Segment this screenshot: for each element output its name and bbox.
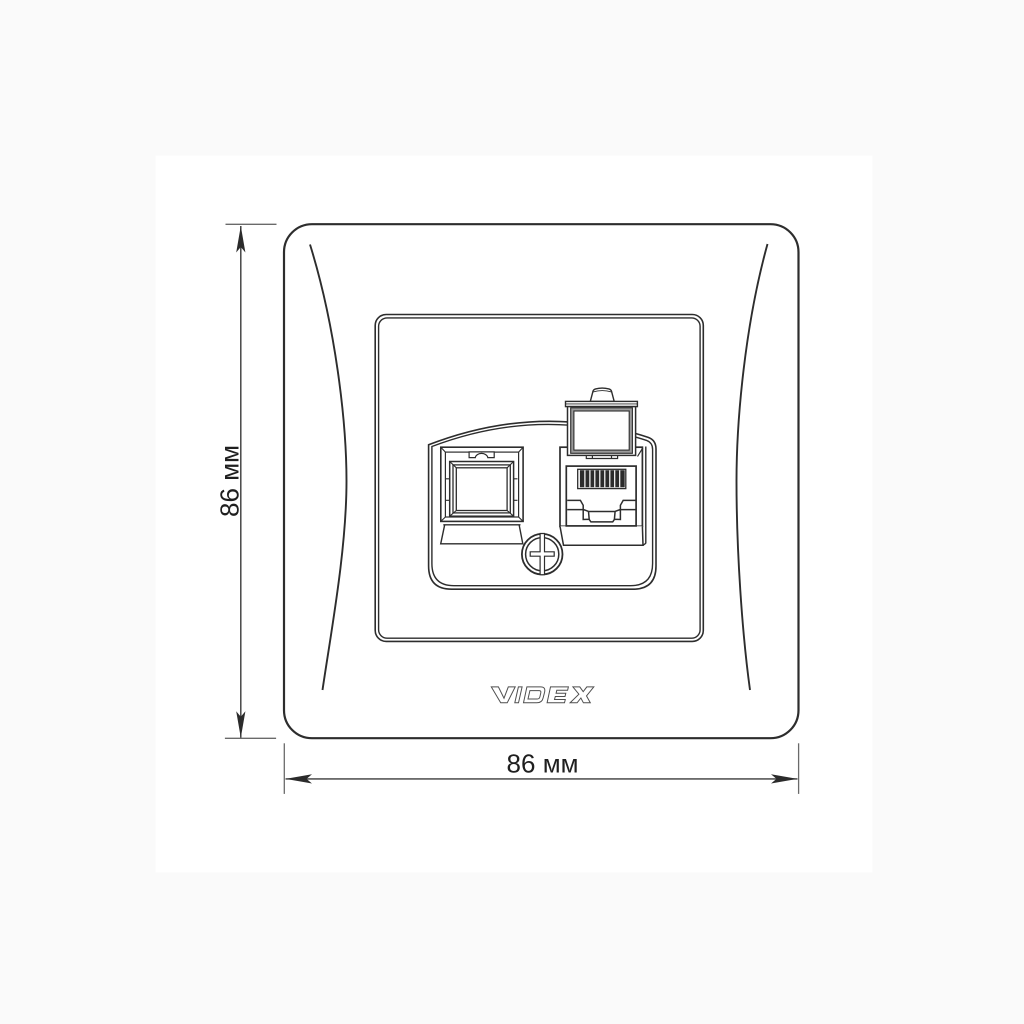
svg-text:86 мм: 86 мм xyxy=(507,749,579,779)
svg-text:86 мм: 86 мм xyxy=(215,445,245,517)
